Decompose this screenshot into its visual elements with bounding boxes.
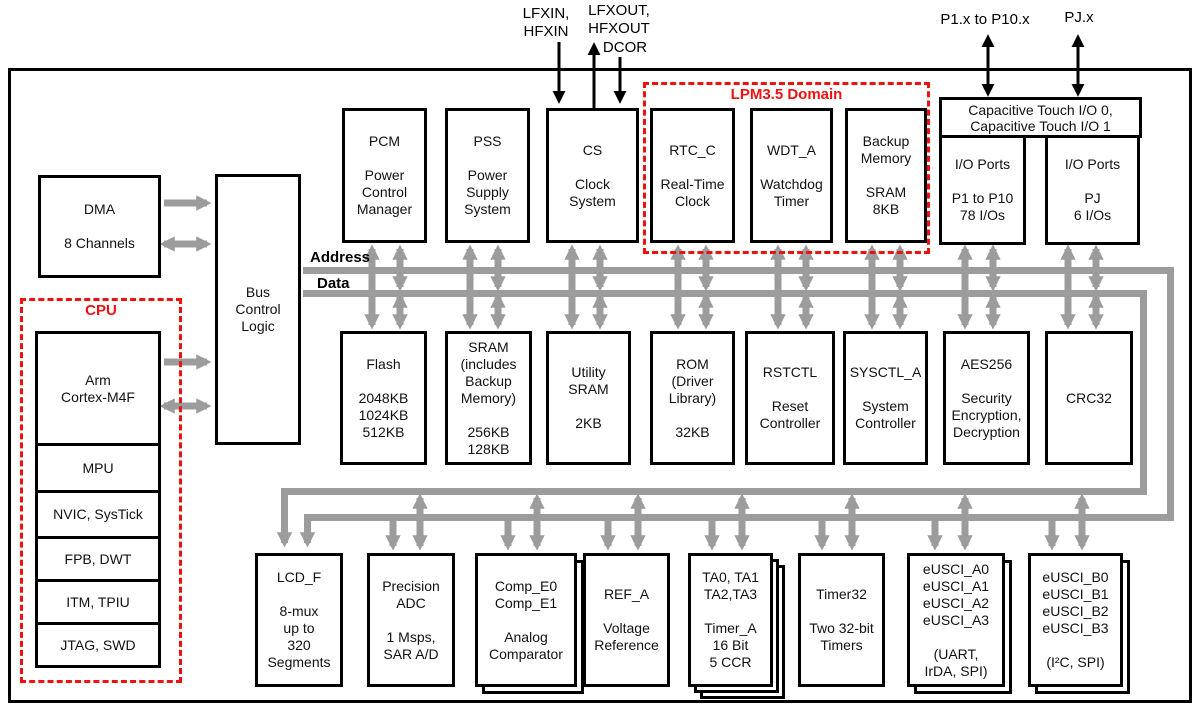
pcm-block: PCM Power Control Manager xyxy=(342,108,427,243)
io-ports-p1-p10-block: I/O Ports P1 to P10 78 I/Os xyxy=(939,135,1026,245)
sram-block: SRAM (includes Backup Memory) 256KB 128K… xyxy=(445,331,532,465)
cortex-m4f-block: Arm Cortex-M4F xyxy=(35,331,161,446)
fpb-block: FPB, DWT xyxy=(35,536,161,582)
timer-a-block: TA0, TA1 TA2,TA3 Timer_A 16 Bit 5 CCR xyxy=(688,553,773,687)
mpu-block: MPU xyxy=(35,443,161,493)
rom-block: ROM (Driver Library) 32KB xyxy=(650,331,735,465)
data-bus-label: Data xyxy=(317,275,350,292)
pj-pins-label: PJ.x xyxy=(1050,9,1108,27)
aes256-block: AES256 Security Encryption, Decryption xyxy=(943,331,1030,465)
timer32-block: Timer32 Two 32-bit Timers xyxy=(798,553,885,687)
cs-block: CS Clock System xyxy=(546,108,639,243)
lfxout-hfxout-label: LFXOUT, HFXOUT xyxy=(575,2,663,38)
adc-block: Precision ADC 1 Msps, SAR A/D xyxy=(367,553,455,687)
pss-block: PSS Power Supply System xyxy=(445,108,530,243)
sysctl-block: SYSCTL_A System Controller xyxy=(843,331,928,465)
itm-block: ITM, TPIU xyxy=(35,579,161,625)
io-ports-pj-block: I/O Ports PJ 6 I/Os xyxy=(1045,135,1140,245)
address-bus-label: Address xyxy=(310,249,370,266)
wdt-block: WDT_A Watchdog Timer xyxy=(750,108,833,243)
rtc-block: RTC_C Real-Time Clock xyxy=(650,108,735,243)
dma-block: DMA 8 Channels xyxy=(38,175,161,278)
diagram-canvas: LFXIN, HFXIN LFXOUT, HFXOUT DCOR P1.x to… xyxy=(0,0,1200,715)
flash-block: Flash 2048KB 1024KB 512KB xyxy=(340,331,427,465)
utility-sram-block: Utility SRAM 2KB xyxy=(546,331,631,465)
lpm35-domain-label: LPM3.5 Domain xyxy=(643,86,930,103)
dcor-label: DCOR xyxy=(597,39,653,57)
cap-touch-block: Capacitive Touch I/O 0, Capacitive Touch… xyxy=(939,97,1142,138)
p1-p10-pins-label: P1.x to P10.x xyxy=(930,11,1040,29)
eusci-b-block: eUSCI_B0 eUSCI_B1 eUSCI_B2 eUSCI_B3 (I²C… xyxy=(1028,553,1123,687)
eusci-a-block: eUSCI_A0 eUSCI_A1 eUSCI_A2 eUSCI_A3 (UAR… xyxy=(907,553,1005,687)
jtag-block: JTAG, SWD xyxy=(35,622,161,668)
cpu-domain-label: CPU xyxy=(20,302,182,319)
lcd-block: LCD_F 8-mux up to 320 Segments xyxy=(255,553,343,687)
bus-control-block: Bus Control Logic xyxy=(215,174,301,445)
crc32-block: CRC32 xyxy=(1045,331,1133,465)
comp-block: Comp_E0 Comp_E1 Analog Comparator xyxy=(475,553,577,687)
ref-block: REF_A Voltage Reference xyxy=(583,553,670,687)
backup-memory-block: Backup Memory SRAM 8KB xyxy=(845,108,927,243)
nvic-block: NVIC, SysTick xyxy=(35,490,161,539)
rstctl-block: RSTCTL Reset Controller xyxy=(745,331,835,465)
